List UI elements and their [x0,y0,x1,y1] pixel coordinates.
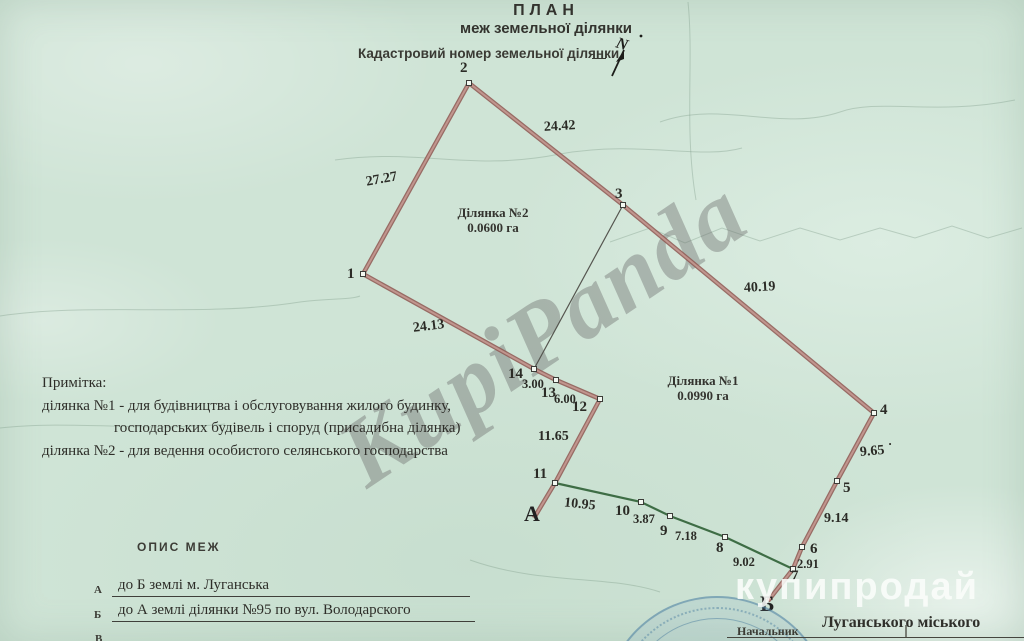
parcel-2-label: Ділянка №2 0.0600 га [448,206,538,235]
boundary-green-line [555,483,793,569]
signature-line [727,637,1024,638]
row-line-b [112,620,475,622]
note-heading: Примітка: [42,372,460,395]
watermark-bottom: купипродай [735,566,979,609]
parcel-1-name: Ділянка №1 [658,374,748,389]
note-line-1: ділянка №1 - для будівництва і обслугову… [42,395,460,418]
cadastral-number-blank-line [592,44,606,59]
cadastral-number-label: Кадастровий номер земельної ділянки [358,46,619,61]
parcel-2-name: Ділянка №2 [448,206,538,221]
boundary-red-line [363,83,874,601]
note-block: Примітка: ділянка №1 - для будівництва і… [42,372,460,462]
note-line-2: господарських будівель і споруд (присади… [42,417,460,440]
organization-name: Луганського міського [822,614,980,632]
page-title: ПЛАН [0,2,1024,20]
note-line-3: ділянка №2 - для ведення особистого селя… [42,440,460,463]
row-text-a: до Б землі м. Луганська [118,577,269,594]
parcel-1-area: 0.0990 га [658,389,748,404]
scanned-land-plan-page: KupiPanda [0,0,1024,641]
parcel-divider-line [534,205,623,369]
parcel-2-area: 0.0600 га [448,221,538,236]
row-letter-v: В [95,633,102,641]
row-letter-b: Б [94,609,101,621]
parcel-1-label: Ділянка №1 0.0990 га [658,374,748,403]
row-letter-a: А [94,584,102,596]
boundary-description-heading: ОПИС МЕЖ [137,540,220,554]
row-text-b: до А землі ділянки №95 по вул. Володарск… [118,602,411,619]
row-line-a [112,595,470,597]
signature-line-tick [905,625,907,638]
page-subtitle: меж земельної ділянки [0,20,1024,37]
